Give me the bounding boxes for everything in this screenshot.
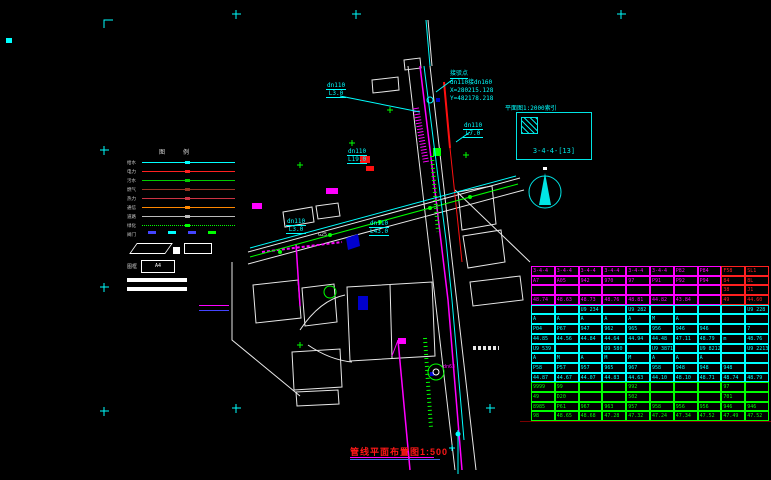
table-cell: 48.71 [698, 373, 722, 383]
table-cell: 48.76 [745, 334, 769, 344]
table-cell: P84 [698, 266, 722, 276]
legend-line-sample [142, 180, 235, 181]
table-cell: M [602, 353, 626, 363]
table-cell: 44.10 [650, 373, 674, 383]
table-cell: A [674, 353, 698, 363]
table-cell [698, 295, 722, 305]
magenta-pipe-layer [252, 66, 462, 470]
legend-header: 图 例 [127, 147, 235, 156]
table-cell: 9999 [531, 382, 555, 392]
table-cell: m [721, 334, 745, 344]
table-base-line [520, 421, 771, 422]
table-cell [626, 285, 650, 295]
legend-item-label: 污水 [127, 177, 141, 183]
table-cell: 963 [602, 402, 626, 412]
table-cell: F58 [721, 266, 745, 276]
table-cell: 98 [531, 411, 555, 421]
legend-item-label: 电力 [127, 168, 141, 174]
legend-row: 道路 [127, 212, 235, 221]
table-cell: 3-4-4 [555, 266, 579, 276]
table-cell: 49 [721, 295, 745, 305]
table-cell [674, 344, 698, 354]
table-cell: A05 [555, 276, 579, 286]
connection-note-title: 接驳点 [450, 70, 468, 79]
legend-line-sample [142, 189, 235, 190]
table-cell: 8L [745, 276, 769, 286]
table-cell: 44.07 [579, 373, 603, 383]
legend-header-col1: 图 [159, 147, 165, 156]
table-cell [698, 314, 722, 324]
table-cell: U9 3871 [650, 344, 674, 354]
drawing-title-scale: 1:500 [420, 447, 448, 457]
table-cell [602, 382, 626, 392]
table-cell [626, 344, 650, 354]
table-cell: A [602, 314, 626, 324]
table-cell: 48.68 [579, 411, 603, 421]
legend-line-sample [142, 225, 235, 226]
table-cell: M [555, 353, 579, 363]
table-cell: 44.67 [555, 373, 579, 383]
legend-rows: 给水电力污水燃气热力通信道路绿化阀门 [127, 158, 235, 239]
table-cell: 44.56 [555, 334, 579, 344]
legend-item-label: 绿化 [127, 222, 141, 228]
table-cell: 956 [674, 402, 698, 412]
legend-magenta-line [199, 305, 229, 306]
cad-canvas[interactable]: dn110L3.0 dn110L7.0 dn110L19.0 dn110L3.0… [0, 0, 771, 480]
legend-row: 阀门 [127, 230, 235, 239]
legend-blue-line [199, 310, 229, 311]
table-cell: A [555, 314, 579, 324]
table-cell: P58 [531, 363, 555, 373]
table-cell: 43.84 [674, 295, 698, 305]
connection-note-pipe: dn110接dn160 [450, 79, 492, 86]
table-cell [745, 363, 769, 373]
table-cell: 44.64 [602, 334, 626, 344]
table-cell: A [674, 314, 698, 324]
title-underline-blue [350, 459, 440, 460]
legend-item-label: 给水 [127, 159, 141, 165]
legend-item-label: 阀门 [127, 231, 141, 237]
legend-rectangle [184, 243, 212, 254]
table-cell [650, 392, 674, 402]
table-cell: 48.74 [531, 295, 555, 305]
table-cell: 958 [650, 363, 674, 373]
table-cell: 47.52 [698, 411, 722, 421]
table-cell [721, 305, 745, 315]
table-cell [698, 382, 722, 392]
legend-row: 给水 [127, 158, 235, 167]
table-cell: U9 2213 [745, 344, 769, 354]
table-cell [650, 305, 674, 315]
legend-shapes [127, 243, 235, 256]
table-cell [674, 382, 698, 392]
table-cell: 48.79 [698, 334, 722, 344]
table-cell [602, 305, 626, 315]
table-cell [531, 305, 555, 315]
table-cell [721, 314, 745, 324]
table-cell: 47.24 [650, 411, 674, 421]
index-box-label: 平面图1:2000索引 [505, 103, 557, 112]
table-cell [579, 392, 603, 402]
table-cell: 970 [602, 276, 626, 286]
table-cell: P57 [555, 363, 579, 373]
table-cell: 47.32 [626, 411, 650, 421]
table-cell [602, 392, 626, 402]
table-cell [721, 324, 745, 334]
table-cell: 48.76 [602, 295, 626, 305]
legend-item-label: 道路 [127, 213, 141, 219]
table-cell [555, 344, 579, 354]
table-cell: 3-4-4 [579, 266, 603, 276]
legend-a4-row: 图框 A4 [127, 260, 235, 273]
table-cell: D20 [555, 392, 579, 402]
table-cell [721, 344, 745, 354]
table-cell: 502 [626, 392, 650, 402]
table-cell [674, 305, 698, 315]
table-cell [745, 314, 769, 324]
north-arrow [529, 167, 561, 208]
legend-line-sample [142, 207, 235, 208]
blue-fitting-layer [346, 98, 440, 376]
table-cell: 48.74 [721, 373, 745, 383]
table-cell: 84 [721, 276, 745, 286]
table-cell: 946 [674, 324, 698, 334]
table-cell: 44.82 [650, 295, 674, 305]
legend-bar [127, 278, 187, 282]
table-cell: 3-4-4 [650, 266, 674, 276]
table-cell: 947 [579, 324, 603, 334]
table-cell: 957 [626, 402, 650, 412]
table-cell: 48.73 [579, 295, 603, 305]
legend-item-label: 通信 [127, 204, 141, 210]
legend-row: 电力 [127, 167, 235, 176]
table-cell [698, 392, 722, 402]
table-cell: 48.65 [555, 411, 579, 421]
table-cell: 97 [626, 276, 650, 286]
table-cell: 48.63 [555, 295, 579, 305]
table-cell: 958 [650, 402, 674, 412]
table-cell: 701 [721, 392, 745, 402]
table-cell: 8985 [531, 402, 555, 412]
table-cell [674, 285, 698, 295]
table-cell [650, 285, 674, 295]
table-cell: 948 [698, 363, 722, 373]
pipe-label: dn110L3.0 [326, 82, 346, 98]
table-cell: 47.49 [721, 411, 745, 421]
legend-row: 热力 [127, 194, 235, 203]
table-cell: SL1 [745, 266, 769, 276]
legend-line-sample [142, 216, 235, 217]
table-cell: P04 [531, 324, 555, 334]
table-cell: A7 [531, 276, 555, 286]
table-cell [555, 285, 579, 295]
legend-row: 通信 [127, 203, 235, 212]
connection-note-x: X=280215.128 [450, 87, 493, 94]
table-cell: 47.34 [674, 411, 698, 421]
legend-row: 绿化 [127, 221, 235, 230]
table-cell [531, 285, 555, 295]
table-cell [579, 285, 603, 295]
table-cell [745, 382, 769, 392]
table-cell: 956 [698, 402, 722, 412]
table-cell: 44.94 [626, 334, 650, 344]
table-cell [579, 382, 603, 392]
table-cell: 47.28 [602, 411, 626, 421]
table-cell: P91 [650, 276, 674, 286]
table-cell: P67 [555, 324, 579, 334]
table-cell: 48.79 [745, 373, 769, 383]
legend-square [173, 247, 180, 254]
index-sheet-code: 3-4-4-[13] [517, 147, 591, 155]
legend-item-label: 热力 [127, 195, 141, 201]
table-cell: P94 [698, 276, 722, 286]
table-cell [579, 344, 603, 354]
g-label: G25 [318, 232, 327, 238]
table-cell: 49 [531, 392, 555, 402]
table-cell [698, 285, 722, 295]
table-cell [674, 392, 698, 402]
table-cell: U9 228 [745, 305, 769, 315]
table-cell: 948 [721, 363, 745, 373]
table-cell: 3-4-4 [626, 266, 650, 276]
table-cell: 44.48 [650, 334, 674, 344]
table-cell: A [531, 314, 555, 324]
legend-bar [127, 287, 187, 291]
table-cell [602, 285, 626, 295]
table-cell: 7 [745, 324, 769, 334]
table-cell: 38 [721, 285, 745, 295]
dn63-label: dn63 [443, 364, 455, 370]
legend-line-sample [142, 171, 235, 172]
pipe-label: dn110L43.0 [369, 220, 389, 236]
table-cell: P82 [674, 266, 698, 276]
table-cell: U9 539 [531, 344, 555, 354]
index-hatch-square [521, 117, 538, 134]
table-cell: 948 [674, 363, 698, 373]
table-cell: 97 [721, 382, 745, 392]
index-box: 3-4-4-[13] [516, 112, 592, 160]
table-cell: 48.10 [674, 373, 698, 383]
table-cell [745, 392, 769, 402]
table-cell: 44.63 [626, 373, 650, 383]
table-cell: P92 [674, 276, 698, 286]
legend-item-label: 燃气 [127, 186, 141, 192]
legend-row: 燃气 [127, 185, 235, 194]
legend-row: 污水 [127, 176, 235, 185]
table-cell: J1 [745, 285, 769, 295]
pipe-label: dn110L19.0 [347, 148, 367, 164]
table-cell: 47.11 [674, 334, 698, 344]
table-cell: 44.83 [602, 373, 626, 383]
table-cell: A [650, 353, 674, 363]
legend-a4-box: A4 [141, 260, 175, 273]
table-cell: M [650, 314, 674, 324]
table-cell: 967 [626, 363, 650, 373]
table-cell: 48.81 [626, 295, 650, 305]
table-cell: A [579, 353, 603, 363]
table-cell: 956 [650, 324, 674, 334]
table-cell: A [698, 353, 722, 363]
title-underline-magenta [350, 457, 434, 458]
legend: 图 例 给水电力污水燃气热力通信道路绿化阀门 图框 A4 [127, 147, 235, 291]
table-cell: A [626, 314, 650, 324]
legend-parallelogram [129, 243, 173, 254]
table-cell: 946 [721, 402, 745, 412]
table-cell: 99 [555, 382, 579, 392]
table-cell: 965 [602, 363, 626, 373]
table-cell: 44.87 [531, 373, 555, 383]
table-cell [721, 353, 745, 363]
table-cell: U9 234 [579, 305, 603, 315]
drawing-title-text: 管线平面布置图 [350, 447, 420, 457]
pipe-label: dn110L7.0 [463, 122, 483, 138]
table-cell: 3-4-4 [531, 266, 555, 276]
table-cell: A [531, 353, 555, 363]
table-cell: 3-4-4 [602, 266, 626, 276]
table-cell: 992 [626, 382, 650, 392]
table-cell: U9 8212 [698, 344, 722, 354]
green-layer [250, 107, 518, 428]
legend-frame-label: 图框 [127, 263, 137, 270]
table-cell: 967 [579, 402, 603, 412]
table-cell [650, 382, 674, 392]
table-cell: U9 580 [602, 344, 626, 354]
table-cell: 942 [579, 276, 603, 286]
table-cell: 957 [579, 363, 603, 373]
table-cell [745, 353, 769, 363]
table-cell: 962 [602, 324, 626, 334]
table-cell: A [579, 314, 603, 324]
table-cell: U9 282 [626, 305, 650, 315]
table-cell: 946 [698, 324, 722, 334]
elevation-table: 3-4-43-4-43-4-43-4-43-4-43-4-4P82P84F58S… [531, 266, 769, 421]
table-cell: 44.85 [531, 334, 555, 344]
table-cell: 44.60 [745, 295, 769, 305]
legend-line-sample [142, 198, 235, 199]
table-cell [555, 305, 579, 315]
legend-line-sample [142, 162, 235, 163]
legend-header-col2: 例 [183, 147, 189, 156]
table-cell: 965 [626, 324, 650, 334]
table-cell: 946 [745, 402, 769, 412]
legend-extra-lines [199, 305, 229, 311]
table-cell [698, 305, 722, 315]
connection-note: 接驳点 dn110接dn160 X=280215.128 Y=482178.21… [450, 70, 493, 103]
connection-note-y: Y=482178.218 [450, 95, 493, 102]
table-cell: M [626, 353, 650, 363]
table-cell: 44.84 [579, 334, 603, 344]
table-cell: 47.52 [745, 411, 769, 421]
pipe-label: dn110L3.0 [286, 218, 306, 234]
table-cell: P61 [555, 402, 579, 412]
